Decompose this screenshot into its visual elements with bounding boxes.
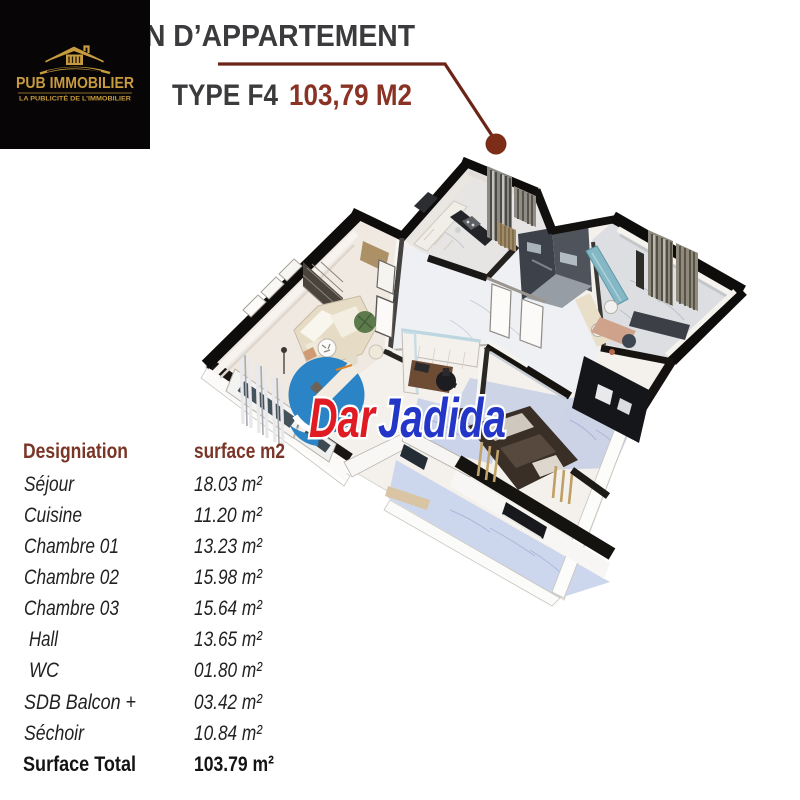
svg-text:103,79 M2: 103,79 M2 <box>289 79 412 112</box>
svg-text:13.23 m²: 13.23 m² <box>194 534 263 558</box>
svg-text:surface m2: surface m2 <box>194 440 285 463</box>
svg-text:15.98 m²: 15.98 m² <box>194 565 263 589</box>
svg-text:PUB IMMOBILIER: PUB IMMOBILIER <box>16 75 134 92</box>
svg-text:03.42 m²: 03.42 m² <box>194 690 263 714</box>
svg-text:Chambre 01: Chambre 01 <box>24 534 119 558</box>
svg-text:Cuisine: Cuisine <box>24 503 82 527</box>
svg-text:TYPE F4: TYPE F4 <box>172 79 278 112</box>
svg-text:01.80 m²: 01.80 m² <box>194 658 263 682</box>
svg-text:Designiation: Designiation <box>23 440 128 463</box>
svg-text:18.03 m²: 18.03 m² <box>194 472 263 496</box>
svg-text:13.65 m²: 13.65 m² <box>194 627 263 651</box>
svg-text:10.84 m²: 10.84 m² <box>194 721 263 745</box>
svg-text:N D’APPARTEMENT: N D’APPARTEMENT <box>145 18 415 53</box>
svg-text:Séjour: Séjour <box>24 472 75 496</box>
svg-text:103.79 m²: 103.79 m² <box>194 752 274 776</box>
svg-text:Chambre 03: Chambre 03 <box>24 596 119 620</box>
svg-text:Chambre 02: Chambre 02 <box>24 565 119 589</box>
svg-text:11.20 m²: 11.20 m² <box>194 503 263 527</box>
svg-text:Hall: Hall <box>29 627 59 651</box>
svg-text:Séchoir: Séchoir <box>24 721 85 745</box>
svg-text:SDB Balcon +: SDB Balcon + <box>24 690 136 714</box>
svg-text:Dar: Dar <box>309 386 377 449</box>
svg-text:Jadida: Jadida <box>378 386 506 449</box>
svg-text:Surface Total: Surface Total <box>23 752 136 776</box>
svg-text:15.64 m²: 15.64 m² <box>194 596 263 620</box>
svg-text:LA PUBLICITÉ DE L’IMMOBILIER: LA PUBLICITÉ DE L’IMMOBILIER <box>19 95 132 103</box>
svg-text:WC: WC <box>29 658 59 682</box>
